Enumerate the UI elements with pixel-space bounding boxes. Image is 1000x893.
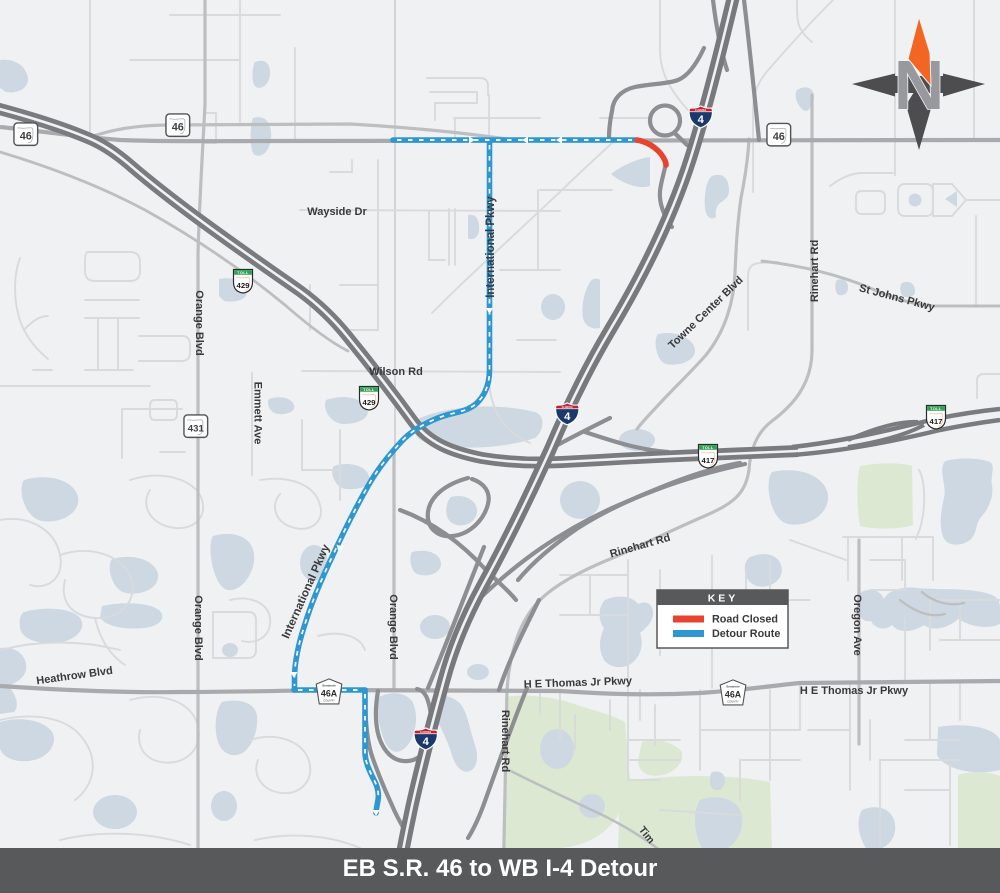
svg-text:429: 429 (237, 281, 251, 290)
svg-text:KEY: KEY (708, 593, 739, 605)
svg-text:46: 46 (773, 131, 785, 143)
svg-text:46: 46 (20, 131, 32, 143)
svg-text:429: 429 (363, 398, 377, 407)
svg-text:Orange Blvd: Orange Blvd (192, 595, 204, 660)
svg-text:Road Closed: Road Closed (712, 614, 778, 626)
svg-text:Wayside Dr: Wayside Dr (307, 206, 367, 218)
svg-text:International Pkwy: International Pkwy (485, 196, 497, 298)
svg-text:H E Thomas Jr Pkwy: H E Thomas Jr Pkwy (800, 685, 909, 697)
svg-text:Rinehart Rd: Rinehart Rd (809, 240, 821, 302)
svg-text:417: 417 (702, 456, 715, 465)
svg-text:417: 417 (930, 417, 943, 426)
svg-text:431: 431 (188, 423, 205, 434)
svg-text:Orange Blvd: Orange Blvd (193, 290, 205, 355)
svg-text:Oregon Ave: Oregon Ave (851, 594, 863, 656)
svg-text:EB S.R. 46 to WB I-4 Detour: EB S.R. 46 to WB I-4 Detour (343, 855, 658, 882)
svg-text:Orange Blvd: Orange Blvd (387, 594, 399, 659)
svg-text:Emmett Ave: Emmett Ave (252, 382, 264, 445)
svg-text:46: 46 (172, 122, 184, 134)
svg-text:Wilson Rd: Wilson Rd (369, 366, 423, 378)
svg-text:Detour Route: Detour Route (712, 628, 780, 640)
svg-text:Rinehart Rd: Rinehart Rd (499, 710, 511, 772)
